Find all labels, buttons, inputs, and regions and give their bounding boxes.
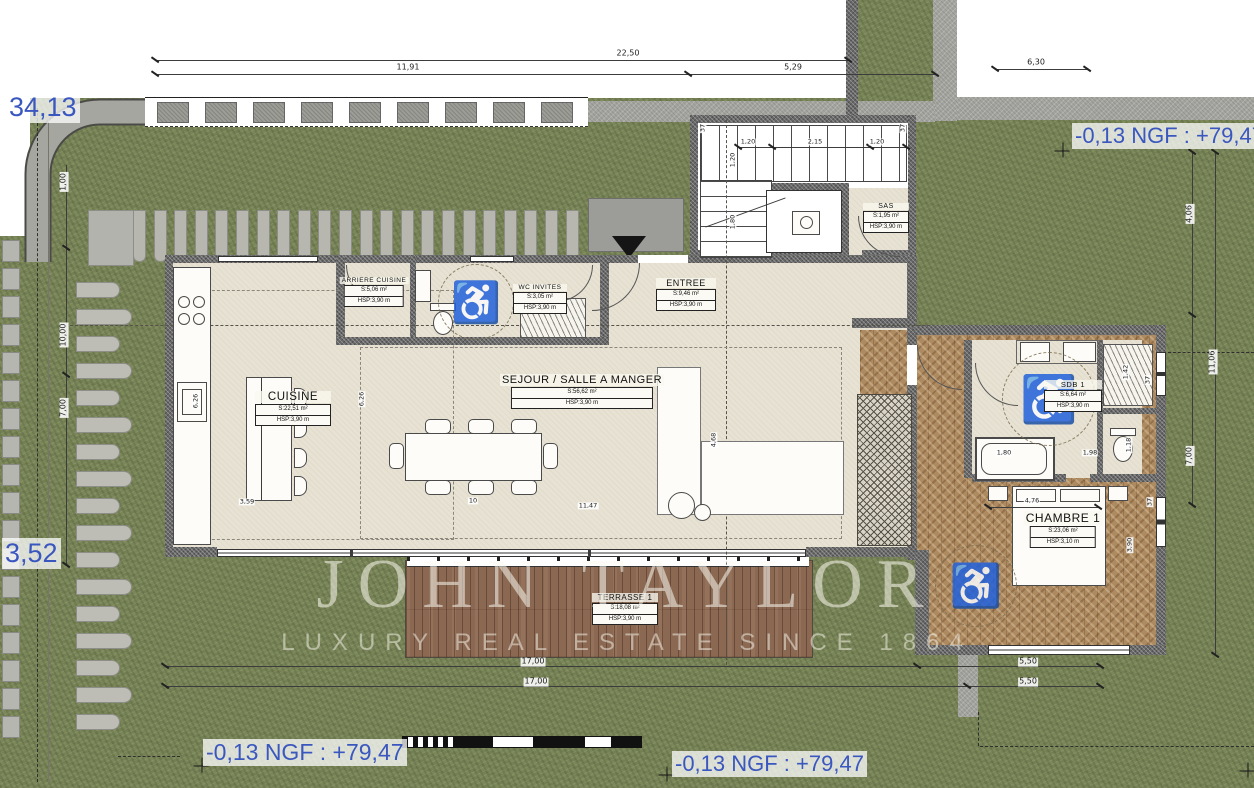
room-name: WC INVITES [513,284,567,291]
dim-label: 6,30 [1026,59,1046,68]
dim-label: 5,50 [1018,678,1038,687]
room-info-box: S:1,95 m² HSP:3,90 m [863,211,909,233]
dim-line [738,147,906,148]
cooktop-burner [178,313,190,325]
front-door-opening [638,255,688,263]
edge-tile [2,380,20,402]
property-boundary-bottom-right [980,746,1254,747]
stepping-slab [76,498,120,514]
edge-tile [2,604,20,626]
wing-wall-west-lower [915,550,929,650]
dim-label: 11,91 [396,64,421,73]
level-annotation: -0,13 NGF : +79,47 [672,751,867,777]
site-margin-top-right [957,0,1254,97]
stepping-slab [76,444,120,460]
side-table [694,504,711,521]
dim-line [988,507,1100,508]
stepping-slab [76,336,120,352]
dim-label: 4,06 [1186,204,1195,224]
dim-label: 22,50 [616,50,641,59]
boundary-length-label: 34,13 [6,92,80,123]
room-info-box: S:18,08 m² HSP:3,90 m [592,603,658,625]
room-label-arriere-cuisine: ARRIERE CUISINE S:5,06 m² HSP:3,90 m [340,277,409,307]
edge-tile [2,352,20,374]
room-name: CHAMBRE 1 [1024,511,1103,525]
island-stool [294,476,307,496]
dim-label: 17,00 [521,658,546,667]
chambre-window-south [988,645,1130,655]
dim-label: 4,76 [1024,497,1040,504]
survey-marker-icon [1240,763,1254,778]
stepping-slab [76,417,132,433]
dim-label: 5,50 [1018,658,1038,667]
dim-label: 5,29 [783,64,803,73]
elevator-symbol [800,216,813,229]
edge-tile [2,492,20,514]
room-name: ARRIERE CUISINE [340,277,409,284]
tower-wall-north [690,115,915,123]
dim-label: 11,06 [1209,350,1218,375]
dim-label: 6,26 [192,393,199,409]
glazing-mullion [588,549,591,557]
edge-tile [2,408,20,430]
boundary-length-label: 3,52 [2,538,61,569]
room-area: S:22,51 m² [256,405,330,415]
room-height: HSP:3,90 m [864,222,908,233]
edge-tile [2,716,20,738]
stepping-slab [76,390,120,406]
property-boundary-bottom-left [118,756,180,757]
dim-label: 1,20 [729,152,736,168]
scale-bar-segment [493,737,533,747]
dim-label: 10,00 [60,323,69,348]
fence-pillar [397,102,429,123]
room-label-sejour: SEJOUR / SALLE A MANGER S:56,62 m² HSP:3… [500,374,664,409]
passage-parquet [860,330,907,394]
sdb-wall-west [964,340,972,478]
glazing-mullion [350,549,353,557]
level-annotation: -0,13 NGF : +79,47 [1072,123,1254,149]
fence [145,97,588,127]
bathtub-basin [981,443,1047,475]
dim-label: 7,00 [60,398,69,418]
stepping-slab [76,282,120,298]
stepping-slab [76,687,132,703]
dim-label: 3,59 [239,498,255,505]
island-stool [294,448,307,468]
side-table [668,492,695,519]
fireplace-unit [857,394,912,546]
edge-tile [2,576,20,598]
paver-slab-left [88,210,134,266]
room-height: HSP:3,10 m [1031,537,1095,548]
dim-label: 1,98 [1082,449,1098,456]
wing-window-east-a [1156,352,1166,396]
property-boundary-left [37,108,38,782]
road-band-top-right [957,97,1254,120]
dim-line [155,60,850,61]
room-info-box: S:9,46 m² HSP:3,90 m [656,289,716,311]
room-name: ENTREE [656,278,716,288]
edge-tile [2,632,20,654]
dim-label: 1,80 [729,214,736,230]
shower-wc-partition [1103,408,1156,414]
room-name: SAS [863,203,909,210]
edge-tile [2,660,20,682]
dim-label: 3,90 [1126,537,1133,553]
dim-label: 4,68 [710,432,717,448]
corridor-door-opening [907,345,917,385]
dining-chair [543,443,558,469]
edge-tile [2,240,20,262]
north-window-wc [470,256,514,262]
room-height: HSP:3,90 m [345,296,403,307]
room-info-box: S:22,51 m² HSP:3,90 m [255,404,331,426]
paver-slat [133,210,146,262]
room-name: SEJOUR / SALLE A MANGER [500,374,664,386]
south-glazing-band [217,549,806,557]
dim-label: 37 [899,123,906,133]
dim-label: 6,26 [358,391,365,407]
dim-label: 7,00 [1186,446,1195,466]
room-label-sas: SAS S:1,95 m² HSP:3,90 m [863,203,909,233]
dining-chair [468,480,494,495]
main-wall-west [165,255,173,555]
wing-wall-south-b [1128,645,1166,655]
dim-label: 1,00 [60,172,69,192]
room-area: S:18,08 m² [593,604,657,614]
toilet-tank [1110,428,1136,436]
stepping-slab [76,606,120,622]
room-info-box: S:3,05 m² HSP:3,90 m [513,292,567,314]
dining-chair [425,480,451,495]
stepping-slab [76,552,120,568]
fence-pillar [541,102,573,123]
dim-label: 1,20 [869,138,885,145]
fence-pillar [349,102,381,123]
level-annotation: -0,13 NGF : +79,47 [203,739,407,766]
dining-chair [425,419,451,434]
stepping-slab [76,633,132,649]
room-info-box: S:23,06 m² HSP:3,10 m [1030,526,1096,548]
fence-pillar [301,102,333,123]
sliding-door-track [407,557,809,567]
cooktop-burner [193,296,205,308]
cooktop-burner [178,296,190,308]
room-height: HSP:3,90 m [593,614,657,625]
scale-bar-segment [611,737,641,747]
stepping-slab [76,309,132,325]
scale-bar-segment [533,737,585,747]
main-wall-south-b [806,547,917,557]
room-info-box: S:6,64 m² HSP:3,90 m [1044,390,1102,412]
dim-label: 10 [468,497,478,504]
room-area: S:23,06 m² [1031,527,1095,537]
fence-pillar [493,102,525,123]
fence-pillar [157,102,189,123]
north-window-kitchen [218,256,318,262]
dim-label: 1,18 [1125,437,1132,453]
stepping-slab [76,363,132,379]
dim-line [66,165,67,565]
room-label-entree: ENTREE S:9,46 m² HSP:3,90 m [656,278,716,311]
edge-tile [2,464,20,486]
room-height: HSP:3,90 m [657,300,715,311]
main-wall-south-a [165,547,217,557]
dining-chair [511,480,537,495]
tile-col [2,240,22,740]
stepping-slab [76,660,120,676]
dim-line [155,74,935,75]
stepping-slab [76,579,132,595]
dining-table [405,433,542,481]
dim-label: 37 [1144,375,1151,385]
dim-label: 1,20 [740,138,756,145]
edge-tile [2,296,20,318]
scale-bar-segment [455,737,493,747]
survey-marker-icon [1055,143,1070,158]
room-area: S:1,95 m² [864,212,908,222]
room-name: TERRASSE 1 [592,593,658,602]
scale-bar-segment [585,737,611,747]
floor-plan-canvas: ♿ ♿ ♿ [0,0,1254,788]
fence-pillar [445,102,477,123]
edge-tile [2,324,20,346]
room-area: S:3,05 m² [514,293,566,303]
dining-chair [389,443,404,469]
room-label-cuisine: CUISINE S:22,51 m² HSP:3,90 m [255,391,331,426]
cooktop-burner [193,313,205,325]
dim-line [165,666,1100,667]
stepping-slab [76,714,120,730]
site-margin-top-left [0,0,852,98]
dim-label: 1,80 [996,449,1012,456]
dining-chair [468,419,494,434]
stepping-slab [76,525,132,541]
scale-bar [402,736,642,748]
room-height: HSP:3,90 m [512,398,652,409]
nightstand [988,486,1008,501]
nightstand [1108,486,1128,501]
edge-tile [2,436,20,458]
stepping-slab [76,471,132,487]
path-bottom-right [958,645,978,717]
room-area: S:56,62 m² [512,388,652,398]
tower-wall-west [690,115,698,258]
wheelchair-icon: ♿ [438,264,514,340]
room-height: HSP:3,90 m [514,303,566,314]
room-label-terrasse1: TERRASSE 1 S:18,08 m² HSP:3,90 m [592,593,658,625]
scale-bar-segment [403,737,455,747]
room-height: HSP:3,90 m [1045,401,1101,412]
step-col [76,282,136,744]
room-info-box: S:5,06 m² HSP:3,90 m [344,285,404,307]
edge-tile [2,688,20,710]
room-area: S:9,46 m² [657,290,715,300]
dim-label: 17,00 [524,678,549,687]
dim-label: 37 [1146,497,1153,507]
dim-label: 1,42 [1122,364,1129,380]
road-band-vertical [933,0,957,121]
wing-window-east-b [1156,497,1166,547]
room-label-sdb1: SDB 1 S:6,64 m² HSP:3,90 m [1044,380,1102,412]
dim-label: 2,15 [807,138,823,145]
edge-tile [2,268,20,290]
room-label-wc-invites: WC INVITES S:3,05 m² HSP:3,90 m [513,284,567,314]
wheelchair-icon: ♿ [935,545,1017,627]
wc-cabinet [415,270,431,302]
pillow [1060,489,1100,502]
dim-line [165,686,1100,687]
room-name: CUISINE [255,391,331,403]
dim-label: 11,47 [578,502,599,509]
room-label-chambre1: CHAMBRE 1 S:23,06 m² HSP:3,10 m [1024,511,1103,548]
room-area: S:5,06 m² [345,286,403,296]
wall-sas-south [852,318,916,328]
dim-label: 37 [699,123,706,133]
room-info-box: S:56,62 m² HSP:3,90 m [511,387,653,409]
sofa [701,441,844,515]
tower-wall-east [908,115,916,258]
dim-line [995,69,1087,70]
fence-pillar [253,102,285,123]
room-height: HSP:3,90 m [256,415,330,426]
boundary-line-left [48,108,49,782]
room-area: S:6,64 m² [1045,391,1101,401]
dining-chair [511,419,537,434]
dim-line [1215,152,1216,655]
fence-pillar [205,102,237,123]
property-boundary-stub [978,712,979,746]
room-name: SDB 1 [1044,380,1102,389]
wing-wall-north [915,325,1166,335]
